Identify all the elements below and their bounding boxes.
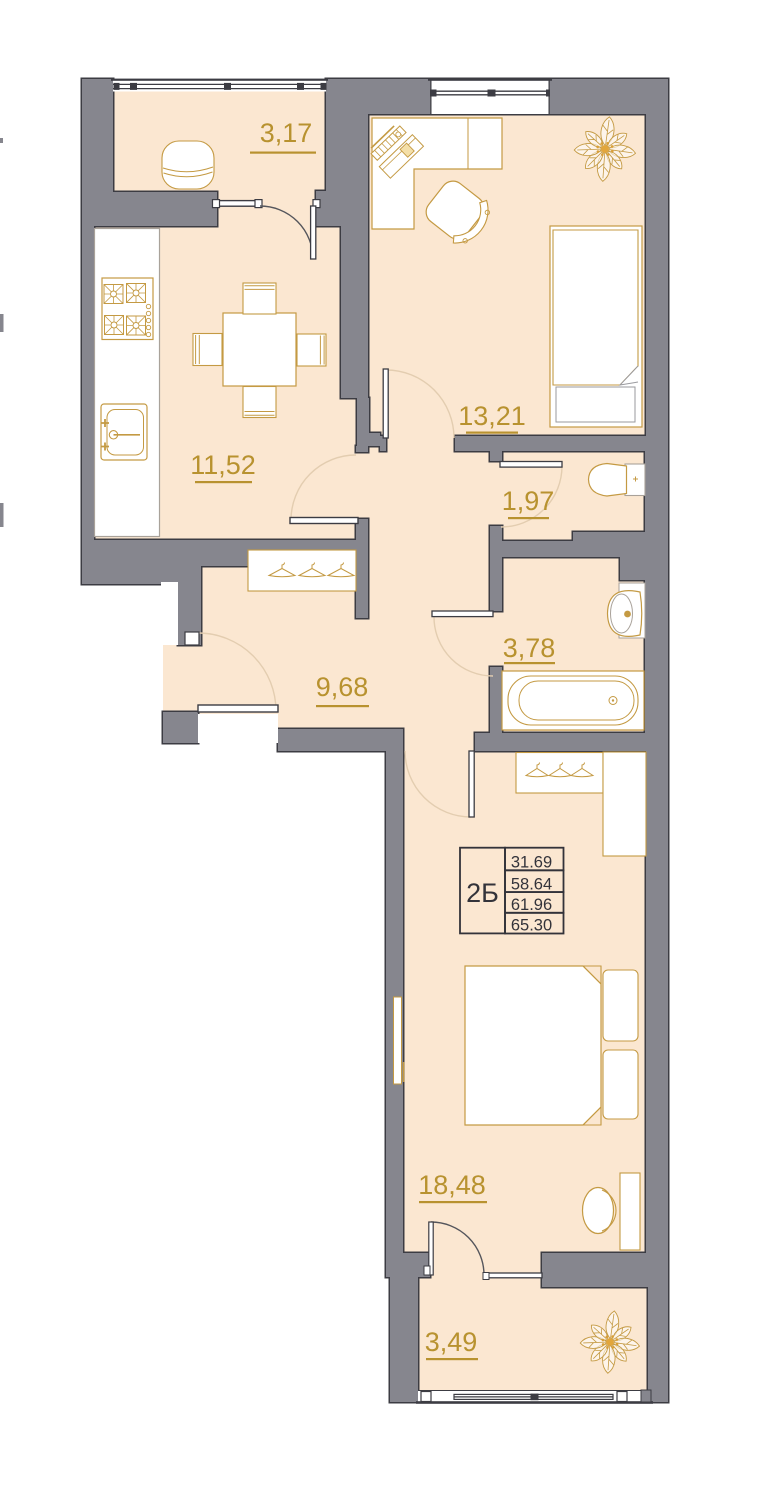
- svg-text:3,17: 3,17: [260, 118, 313, 148]
- svg-text:3,78: 3,78: [503, 633, 556, 663]
- svg-text:31.69: 31.69: [511, 854, 552, 872]
- svg-text:11,52: 11,52: [190, 450, 256, 480]
- svg-text:3,49: 3,49: [425, 1327, 478, 1357]
- svg-text:58.64: 58.64: [511, 876, 552, 894]
- svg-text:13,21: 13,21: [458, 401, 526, 431]
- svg-text:61.96: 61.96: [511, 896, 552, 914]
- svg-text:2Б: 2Б: [466, 878, 499, 908]
- svg-text:65.30: 65.30: [511, 917, 552, 935]
- svg-text:18,48: 18,48: [418, 1170, 486, 1200]
- svg-text:9,68: 9,68: [316, 672, 369, 702]
- svg-text:1,97: 1,97: [502, 486, 555, 516]
